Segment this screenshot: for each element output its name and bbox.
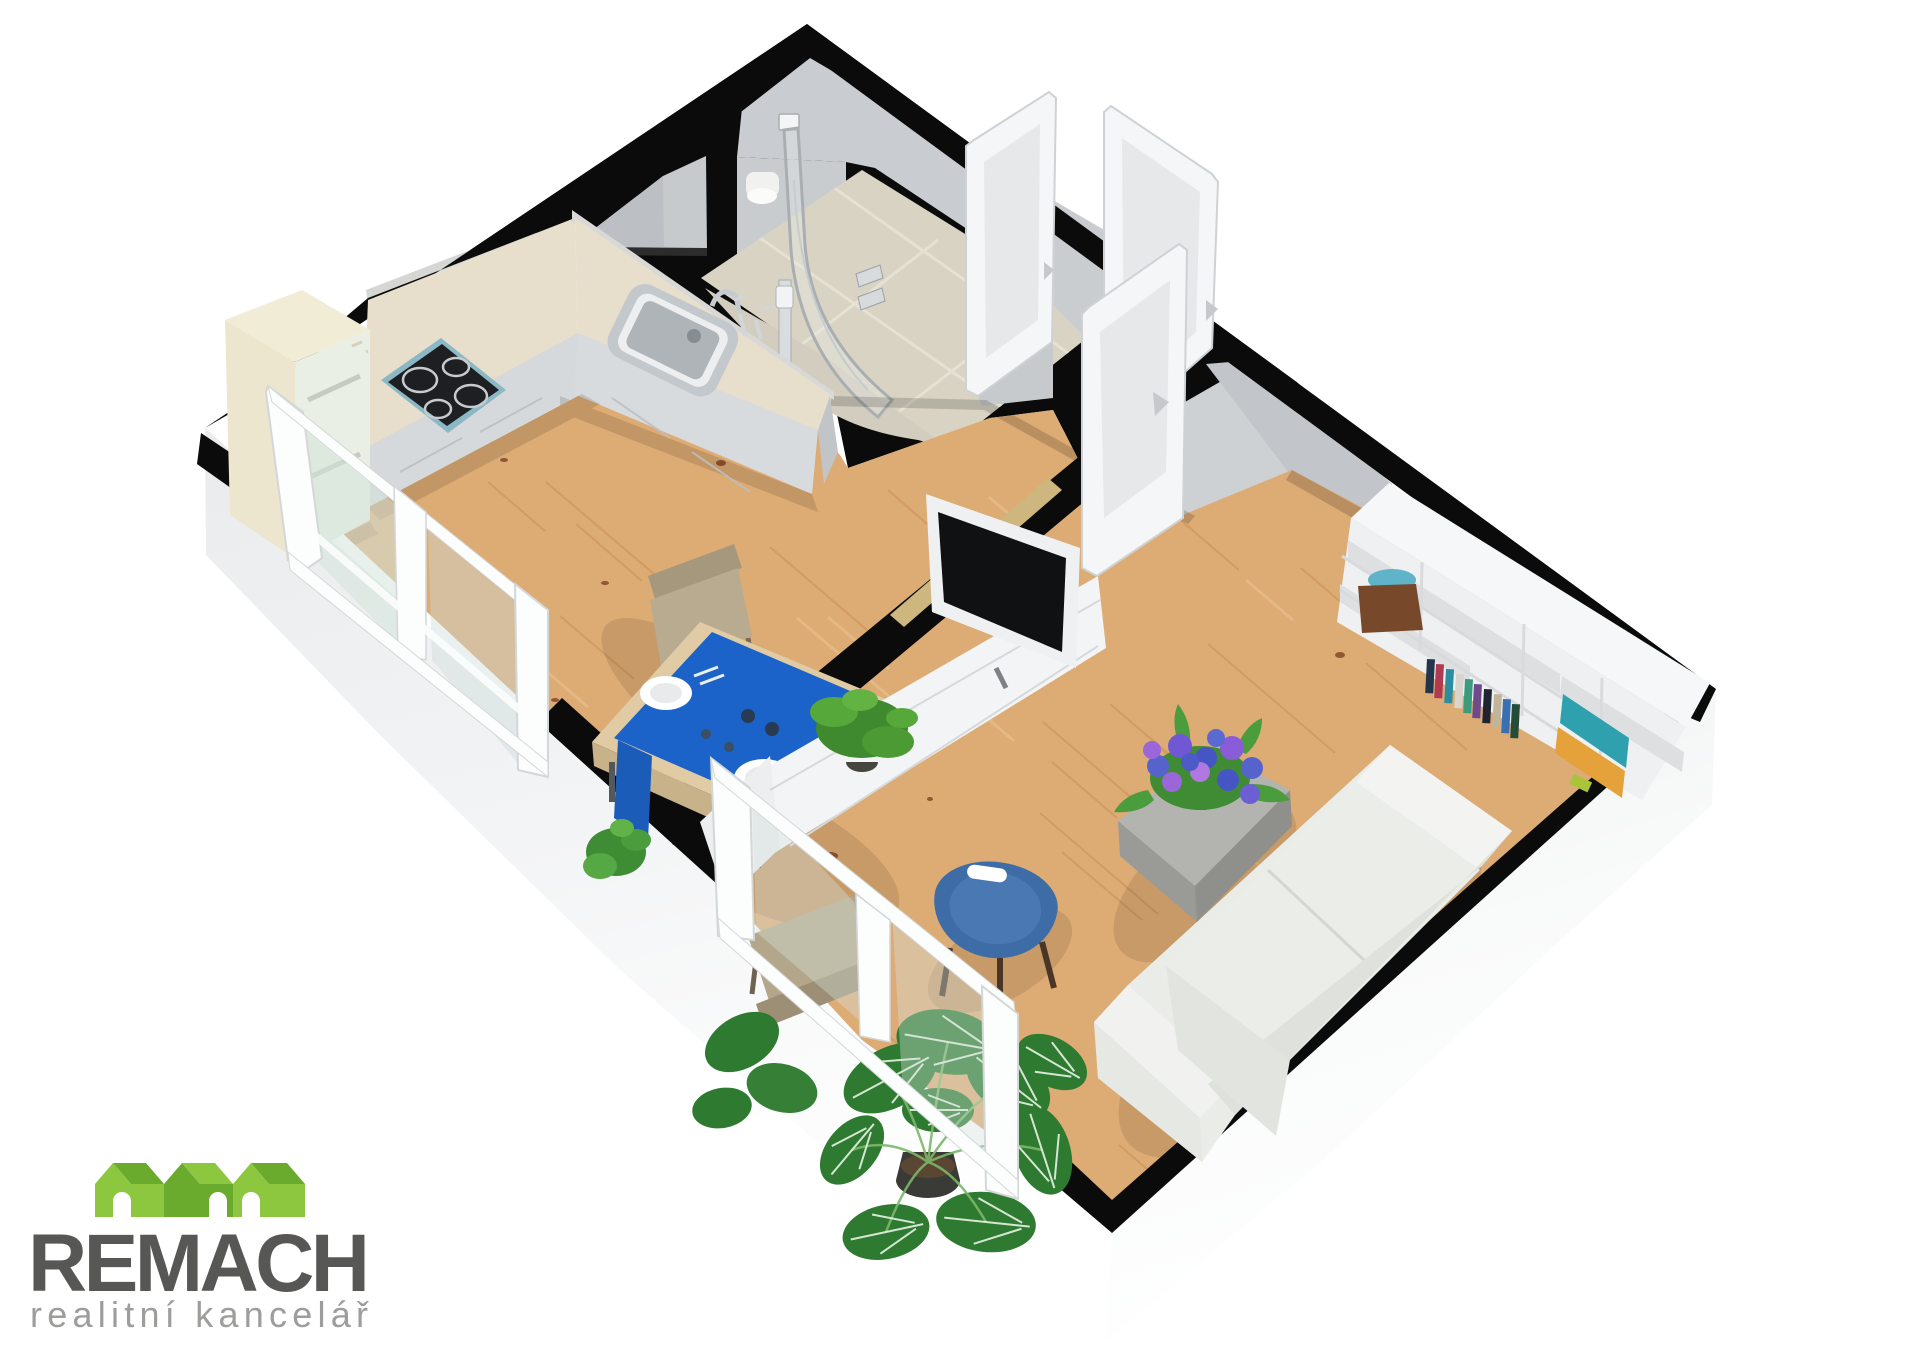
svg-text:realitní kancelář: realitní kancelář [30, 1294, 370, 1335]
